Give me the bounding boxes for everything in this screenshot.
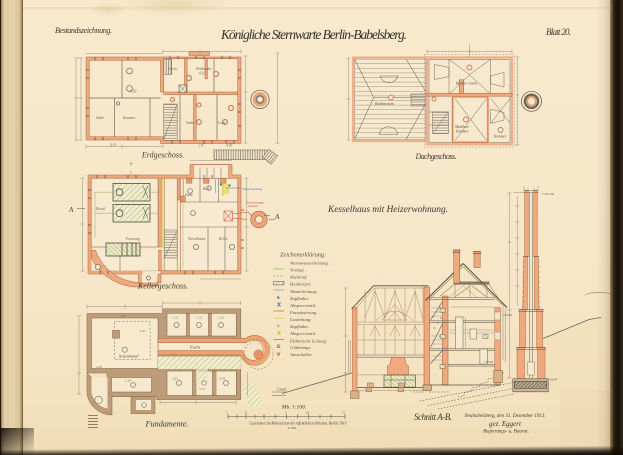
svg-text:Waschküche: Waschküche: [188, 237, 206, 241]
svg-text:+41.50: +41.50: [545, 192, 554, 196]
svg-text:5: 5: [285, 411, 287, 415]
svg-text:Boden–raum: Boden–raum: [456, 81, 477, 86]
svg-text:2.64: 2.64: [219, 377, 225, 381]
svg-text:Warmwasserheizung:: Warmwasserheizung:: [290, 261, 330, 266]
svg-text:5.12: 5.12: [199, 387, 205, 391]
svg-text:2.10: 2.10: [125, 379, 131, 383]
svg-text:Fundamente.: Fundamente.: [145, 420, 189, 429]
svg-text:Wasserzuleitung: Wasserzuleitung: [243, 187, 263, 191]
svg-text:Regierungs- u. Baurat.: Regierungs- u. Baurat.: [482, 430, 529, 435]
svg-text:Stube: Stube: [185, 193, 193, 197]
svg-text:Kellergeschoss.: Kellergeschoss.: [137, 282, 188, 291]
svg-text:Küche: Küche: [167, 67, 178, 71]
svg-text:Schnitt A-B.: Schnitt A-B.: [414, 412, 452, 422]
svg-text:+34.00: +34.00: [503, 313, 512, 317]
svg-text:Königliche Sternwarte Berlin-B: Königliche Sternwarte Berlin-Babelsberg.: [220, 27, 407, 42]
svg-text:+32.00: +32.00: [484, 360, 493, 364]
svg-text:Mädchen: Mädchen: [454, 125, 469, 129]
svg-text:+30.47: +30.47: [549, 378, 558, 382]
svg-text:1.47: 1.47: [120, 314, 126, 318]
svg-text:A: A: [274, 213, 280, 221]
svg-text:1.10: 1.10: [172, 315, 178, 319]
svg-text:4.10: 4.10: [110, 143, 116, 147]
svg-text:Keller: Keller: [218, 237, 229, 241]
svg-text:4.10: 4.10: [199, 72, 205, 76]
svg-text:Elektrische Leitung:: Elektrische Leitung:: [289, 338, 328, 343]
svg-text:Erdgeschoss.: Erdgeschoss.: [141, 151, 184, 160]
svg-text:1.10: 1.10: [196, 315, 202, 319]
svg-text:Absperrventil.: Absperrventil.: [289, 331, 316, 336]
svg-text:Bad: Bad: [203, 187, 209, 191]
svg-text:Bodenraum: Bodenraum: [375, 101, 394, 106]
svg-text:Neubabelsberg, den 31. Dezembe: Neubabelsberg, den 31. Dezember 1913.: [463, 414, 545, 419]
svg-text:1.47: 1.47: [140, 329, 146, 333]
svg-text:2.64: 2.64: [172, 377, 178, 381]
svg-text:Kessel: Kessel: [95, 207, 105, 211]
svg-text:Rücklauf.: Rücklauf.: [289, 275, 307, 280]
svg-text:4.50: 4.50: [130, 90, 136, 94]
svg-text:2.47: 2.47: [198, 144, 204, 148]
svg-text:1:100.: 1:100.: [288, 426, 297, 430]
svg-text:Leute: Leute: [217, 121, 226, 125]
svg-text:Gezeichnet im Ministerium der: Gezeichnet im Ministerium der öffentlich…: [249, 422, 346, 427]
svg-text:Blatt 20.: Blatt 20.: [546, 27, 571, 37]
svg-text:Stube: Stube: [186, 121, 194, 125]
svg-text:Wasserleitung:: Wasserleitung:: [290, 289, 318, 294]
svg-text:Bestandszeichnung.: Bestandszeichnung.: [55, 26, 112, 35]
svg-text:Entwässerung.: Entwässerung.: [289, 310, 317, 315]
svg-text:Kesselhaus mit Heizerwohnung.: Kesselhaus mit Heizerwohnung.: [327, 205, 448, 215]
svg-text:0: 0: [245, 411, 247, 415]
svg-text:1.10: 1.10: [218, 315, 224, 319]
svg-text:4.40: 4.40: [96, 365, 102, 369]
svg-text:Kammer: Kammer: [455, 129, 469, 133]
svg-text:Stube: Stube: [96, 116, 104, 120]
svg-text:gez. Eggert: gez. Eggert: [489, 420, 522, 428]
svg-text:schacht: schacht: [248, 204, 258, 208]
svg-text:Ausschalter.: Ausschalter.: [289, 352, 312, 357]
svg-text:Fuchs: Fuchs: [189, 345, 201, 350]
svg-text:Wohnstube: Wohnstube: [196, 67, 212, 71]
svg-text:10: 10: [306, 411, 310, 415]
svg-text:Glühlampe.: Glühlampe.: [290, 345, 312, 350]
svg-text:Zeichenerklärung:: Zeichenerklärung:: [280, 252, 326, 259]
svg-text:4.05: 4.05: [226, 144, 232, 148]
svg-text:1.1: 1.1: [171, 352, 175, 356]
svg-text:Zapfhahn.: Zapfhahn.: [290, 296, 309, 301]
svg-text:Heizkörper.: Heizkörper.: [289, 282, 311, 287]
svg-text:15: 15: [342, 411, 346, 415]
svg-text:5: 5: [226, 411, 228, 415]
svg-text:Seitenkanal: Seitenkanal: [119, 354, 139, 359]
svg-text:Dachgeschoss.: Dachgeschoss.: [415, 152, 457, 161]
svg-text:Zapfhahn.: Zapfhahn.: [290, 324, 309, 329]
svg-text:A: A: [68, 206, 74, 214]
svg-text:Gasleitung:: Gasleitung:: [290, 317, 312, 322]
svg-text:Absperrventil.: Absperrventil.: [289, 303, 316, 308]
svg-text:Feuerung: Feuerung: [125, 237, 140, 241]
svg-text:Kammer: Kammer: [122, 116, 136, 120]
svg-text:Vorlauf.: Vorlauf.: [290, 268, 305, 273]
svg-text:Canal.: Canal.: [277, 388, 287, 392]
svg-text:Kammer: Kammer: [493, 135, 507, 139]
